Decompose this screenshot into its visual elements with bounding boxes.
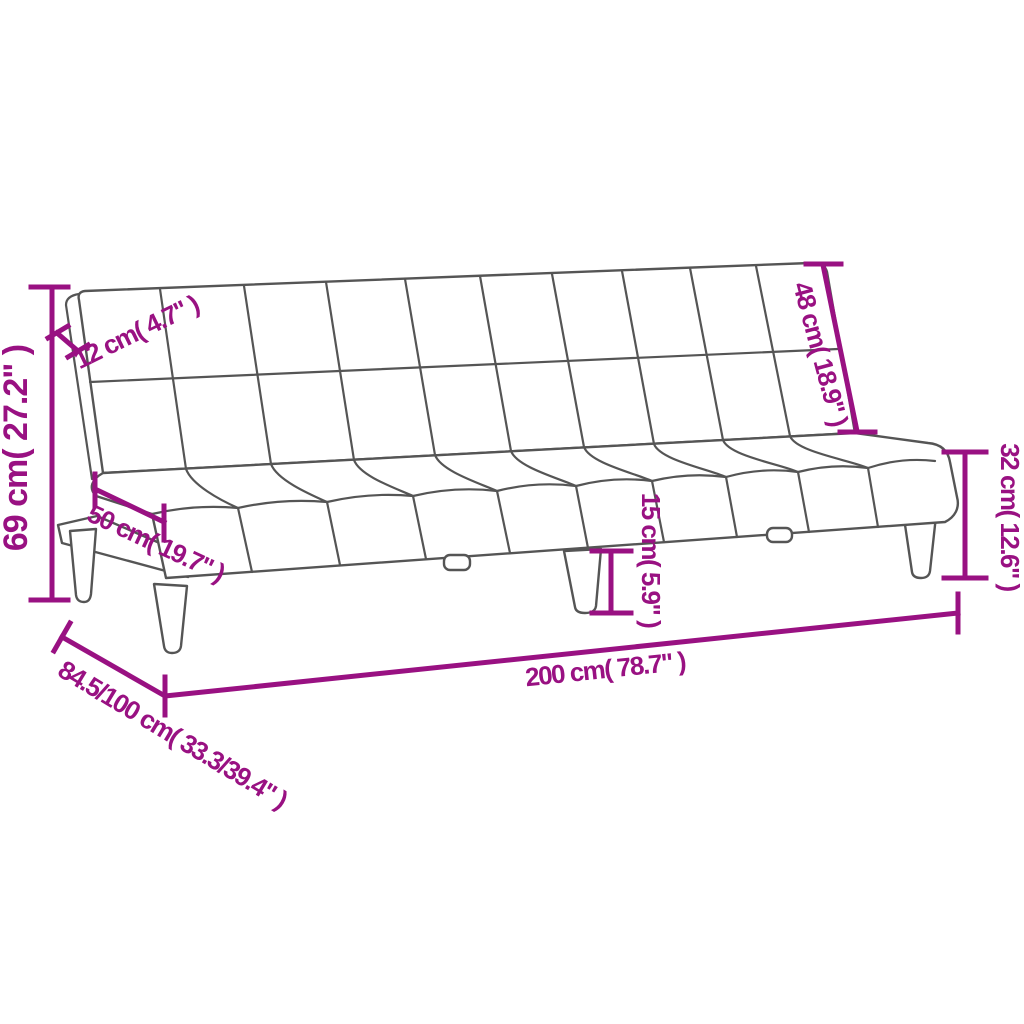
- dim-depth-folded-unfolded-label: 84.5/100 cm( 33.3/39.4" ): [53, 654, 293, 815]
- sofa-leg-back-left: [70, 529, 96, 602]
- dim-seat-height: 32 cm( 12.6" ): [944, 443, 1024, 591]
- dim-overall-width-label: 200 cm( 78.7" ): [524, 646, 687, 693]
- dim-overall-height-label: 69 cm( 27.2" ): [0, 345, 35, 551]
- dim-leg-height-label: 15 cm( 5.9" ): [636, 493, 666, 628]
- dimension-diagram-svg: 69 cm( 27.2" ) 12 cm( 4.7" ) 50 cm( 19.7…: [0, 0, 1024, 1024]
- product-dimension-diagram: 69 cm( 27.2" ) 12 cm( 4.7" ) 50 cm( 19.7…: [0, 0, 1024, 1024]
- dim-overall-width: 200 cm( 78.7" ): [165, 594, 958, 715]
- sofa-leg-front-left: [154, 584, 187, 653]
- sofa-leg-stub: [767, 528, 792, 542]
- sofa-leg-middle: [564, 549, 601, 613]
- sofa-leg-stub: [444, 555, 470, 570]
- dim-seat-height-label: 32 cm( 12.6" ): [995, 443, 1024, 591]
